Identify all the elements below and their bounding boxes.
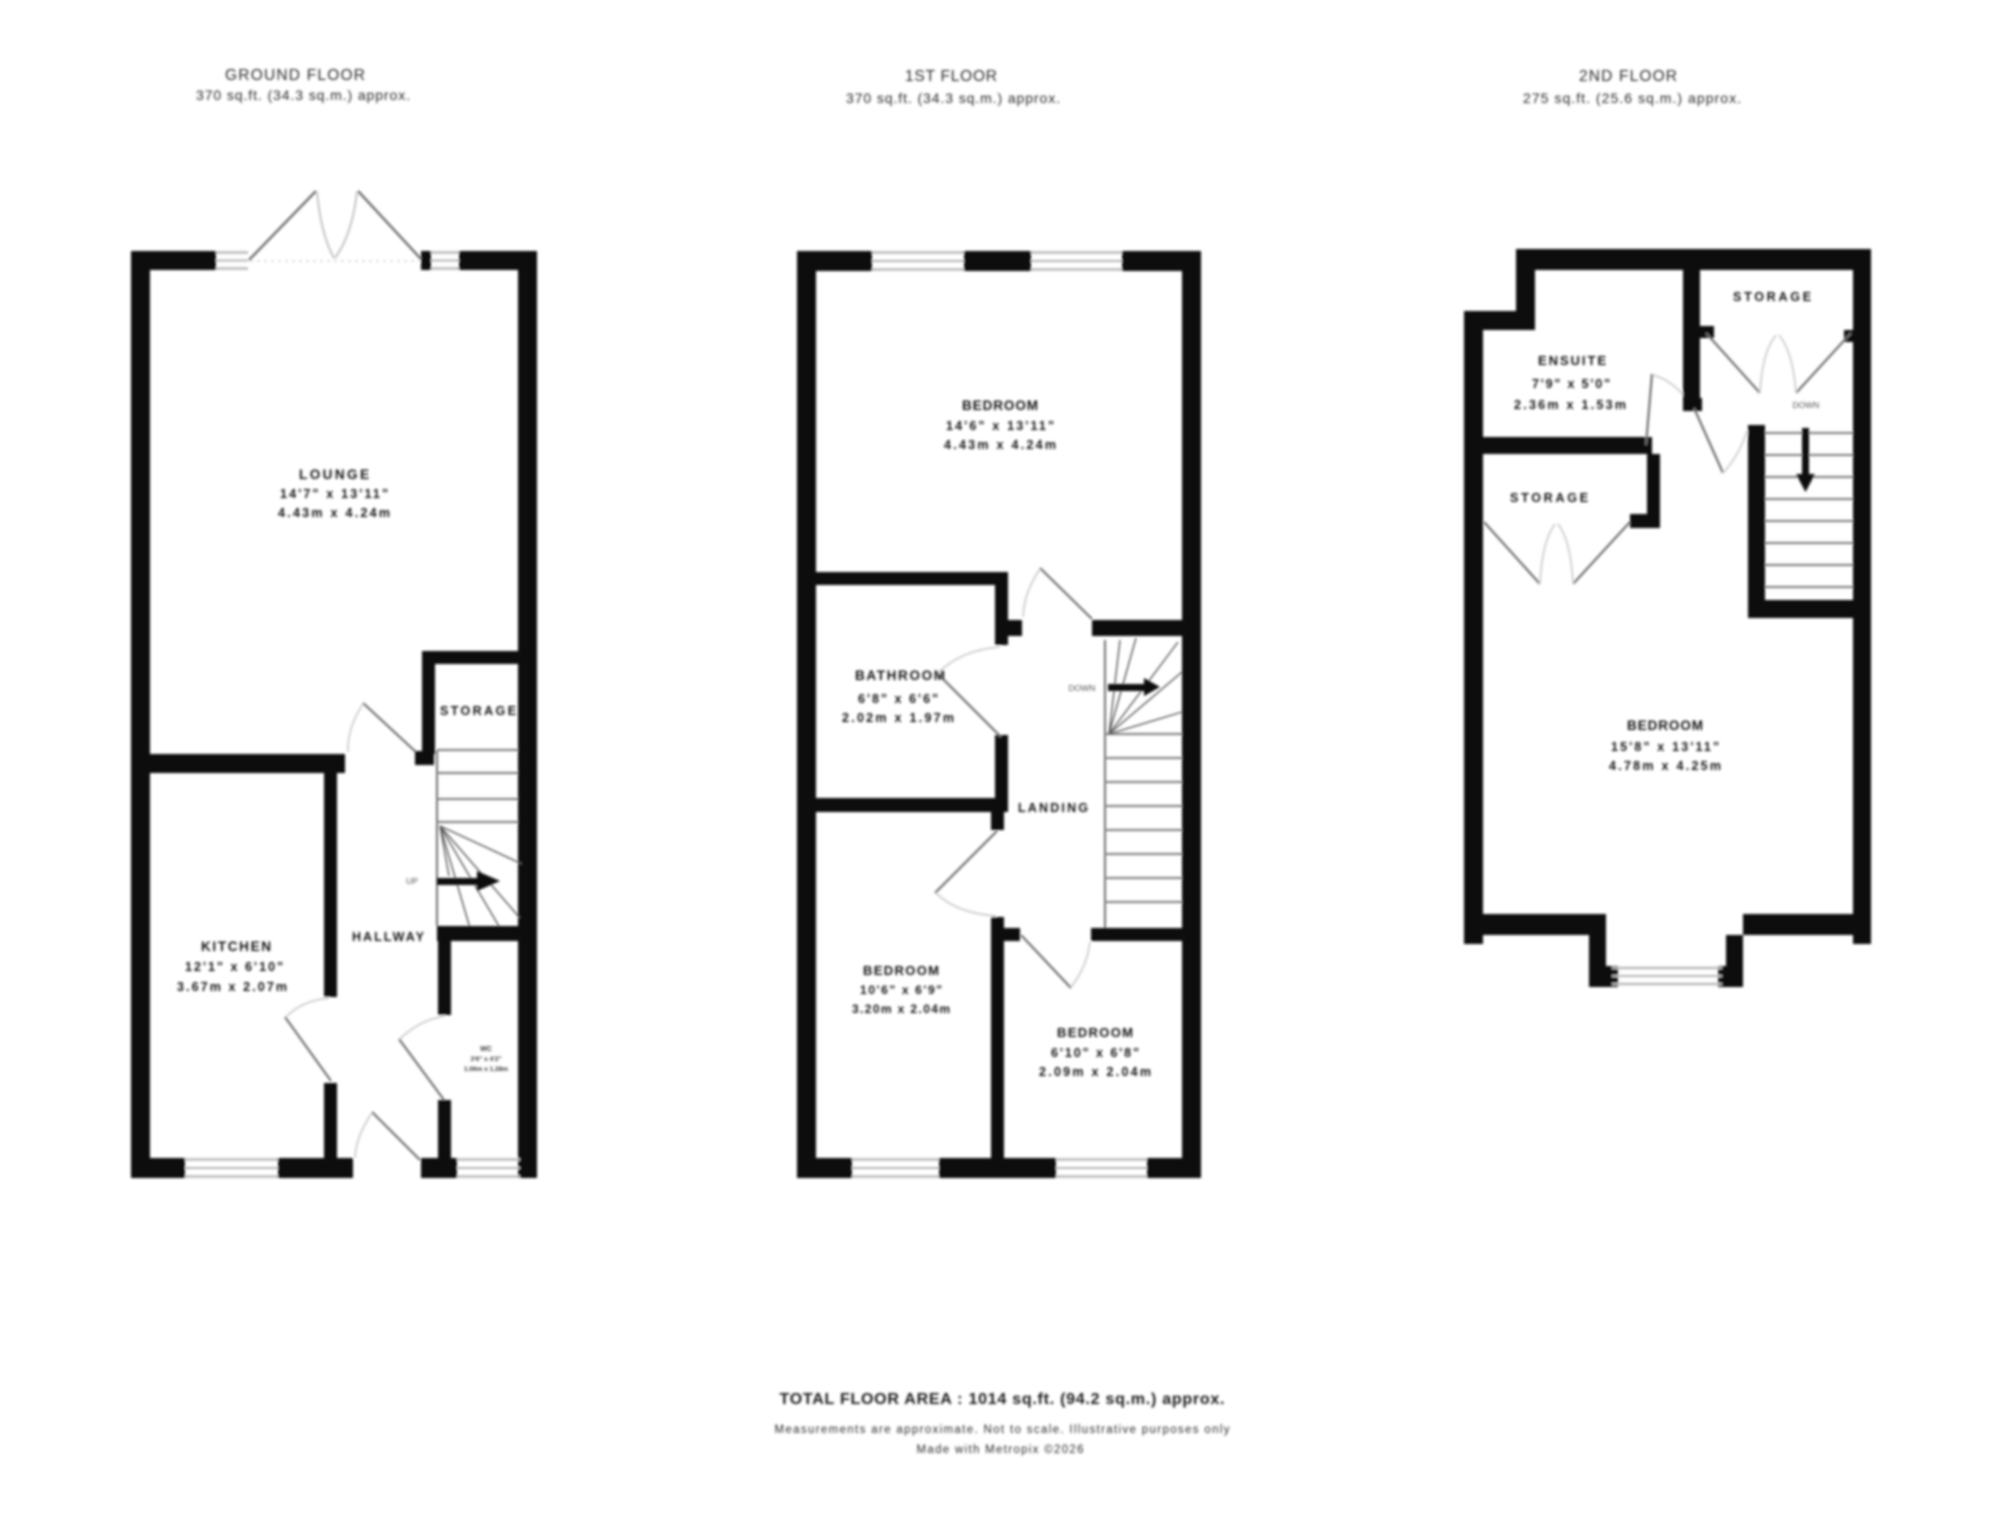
svg-text:KITCHEN: KITCHEN	[201, 939, 271, 954]
svg-text:STORAGE: STORAGE	[1510, 491, 1588, 505]
svg-text:370 sq.ft. (34.3 sq.m.) approx: 370 sq.ft. (34.3 sq.m.) approx.	[196, 87, 410, 103]
svg-text:2ND FLOOR: 2ND FLOOR	[1579, 68, 1677, 85]
svg-text:STORAGE: STORAGE	[1733, 290, 1811, 304]
svg-text:3.67m x 2.07m: 3.67m x 2.07m	[177, 980, 287, 994]
svg-text:BEDROOM: BEDROOM	[962, 398, 1038, 413]
svg-text:1.06m x 1.28m: 1.06m x 1.28m	[464, 1066, 508, 1073]
svg-text:STORAGE: STORAGE	[440, 704, 516, 718]
svg-text:2.09m x 2.04m: 2.09m x 2.04m	[1039, 1065, 1151, 1079]
svg-text:6'10" x 6'8": 6'10" x 6'8"	[1051, 1046, 1139, 1060]
svg-text:12'1" x 6'10": 12'1" x 6'10"	[185, 960, 283, 974]
svg-text:1ST FLOOR: 1ST FLOOR	[905, 68, 997, 85]
svg-text:BEDROOM: BEDROOM	[1627, 718, 1703, 733]
svg-text:7'9" x 5'0": 7'9" x 5'0"	[1532, 377, 1610, 391]
svg-text:275 sq.ft. (25.6 sq.m.) approx: 275 sq.ft. (25.6 sq.m.) approx.	[1523, 90, 1741, 106]
svg-text:4.43m x 4.24m: 4.43m x 4.24m	[944, 438, 1056, 452]
svg-text:4.43m x 4.24m: 4.43m x 4.24m	[278, 506, 390, 520]
svg-text:3'6" x 4'2": 3'6" x 4'2"	[471, 1056, 502, 1063]
svg-text:BEDROOM: BEDROOM	[1057, 1025, 1133, 1040]
svg-text:TOTAL FLOOR AREA : 1014 sq.ft.: TOTAL FLOOR AREA : 1014 sq.ft. (94.2 sq.…	[780, 1391, 1225, 1408]
svg-text:WC: WC	[480, 1046, 492, 1053]
svg-text:10'6" x 6'9": 10'6" x 6'9"	[860, 983, 942, 997]
svg-text:LANDING: LANDING	[1018, 801, 1088, 815]
svg-text:BATHROOM: BATHROOM	[855, 668, 945, 683]
svg-text:370 sq.ft. (34.3 sq.m.) approx: 370 sq.ft. (34.3 sq.m.) approx.	[846, 90, 1060, 106]
svg-text:2.02m x 1.97m: 2.02m x 1.97m	[842, 711, 954, 725]
svg-text:3.20m x 2.04m: 3.20m x 2.04m	[852, 1002, 950, 1016]
svg-text:BEDROOM: BEDROOM	[863, 963, 939, 978]
svg-text:2.36m x 1.53m: 2.36m x 1.53m	[1514, 398, 1626, 412]
svg-text:DOWN: DOWN	[1793, 400, 1820, 410]
svg-text:GROUND FLOOR: GROUND FLOOR	[225, 67, 365, 84]
svg-text:4.78m x 4.25m: 4.78m x 4.25m	[1609, 759, 1721, 773]
svg-text:DOWN: DOWN	[1069, 683, 1096, 693]
svg-text:UP: UP	[406, 876, 418, 886]
